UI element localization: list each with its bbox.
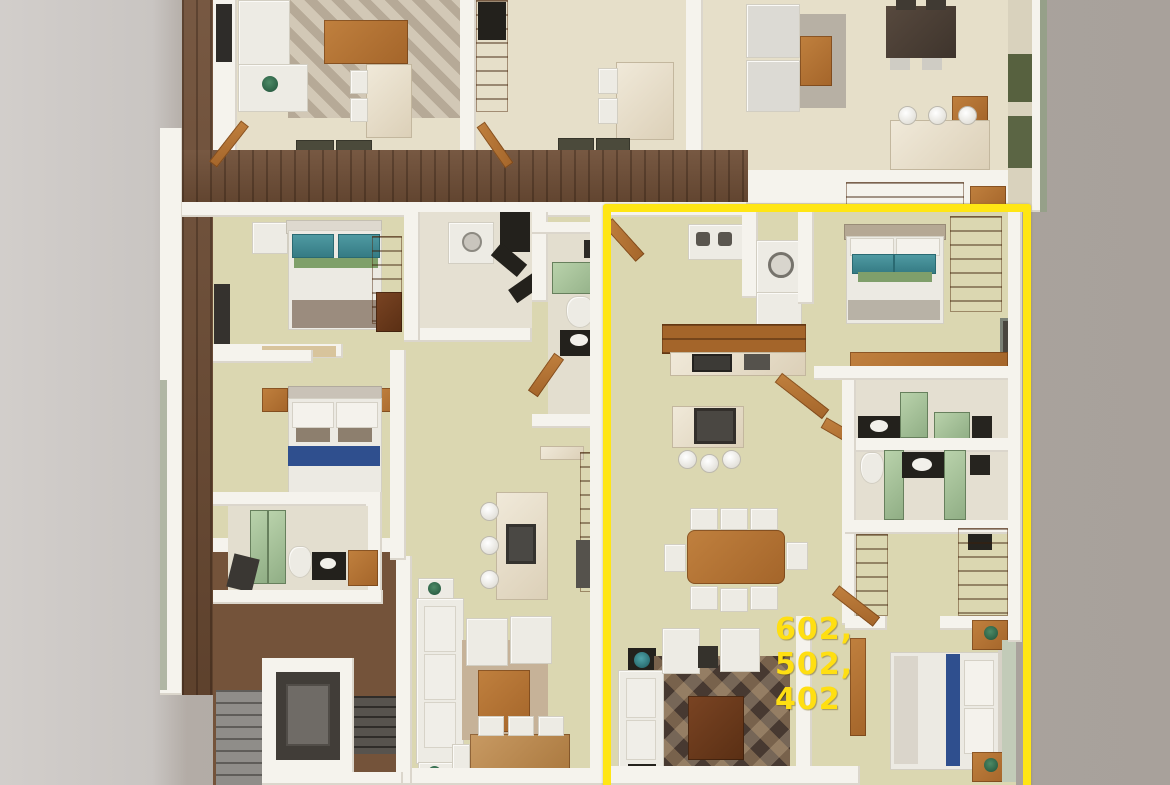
island-stool bbox=[480, 502, 499, 521]
sofa-cushion bbox=[424, 606, 456, 652]
unit-b-chair bbox=[598, 98, 618, 124]
dining-chair bbox=[478, 716, 504, 736]
unit-b-chair bbox=[598, 68, 618, 94]
wall-bedroom2-top bbox=[213, 350, 313, 363]
unit-number-line: 502, bbox=[775, 647, 853, 682]
island-stool bbox=[480, 570, 499, 589]
kitchen-counter bbox=[540, 446, 584, 460]
unit-c-dining-table bbox=[886, 6, 956, 58]
cooktop bbox=[506, 524, 536, 564]
pillow bbox=[292, 234, 334, 258]
floor-plan-render: 602, 502, 402 bbox=[0, 0, 1170, 785]
unit-c-dining-chair bbox=[896, 0, 916, 10]
unit-c-dining-chair bbox=[926, 0, 946, 10]
unit-b-island bbox=[616, 62, 674, 140]
unit-a-plant bbox=[262, 76, 278, 92]
unit-c-sofa-section bbox=[746, 60, 800, 112]
unit-a-dining-table bbox=[366, 64, 412, 138]
balcony-green-panel bbox=[1008, 116, 1034, 168]
unit-c-sofa-section bbox=[746, 4, 800, 58]
sofa-cushion bbox=[424, 654, 456, 700]
island-stool bbox=[480, 536, 499, 555]
wall-bath3-bottom bbox=[213, 590, 383, 604]
wall-bath3-top bbox=[213, 492, 381, 506]
wall-left-unit-bottom bbox=[412, 768, 608, 785]
window-top-left bbox=[216, 4, 232, 62]
wall-bath3-right bbox=[366, 492, 382, 604]
wall-unit-b-c bbox=[686, 0, 703, 155]
unit-c-coffee-table bbox=[800, 36, 832, 86]
bed-throw bbox=[294, 258, 378, 268]
bar-stool bbox=[928, 106, 947, 125]
wall-bathroom-bottom bbox=[420, 328, 532, 342]
corridor-wood-vertical bbox=[182, 0, 213, 695]
unit-a-chair bbox=[350, 70, 368, 94]
unit-a-coffee-table bbox=[324, 20, 408, 64]
shower-glass bbox=[268, 510, 286, 584]
balcony-glass-left bbox=[160, 380, 167, 690]
dresser bbox=[348, 550, 378, 586]
wall-bedroom2-right bbox=[390, 350, 406, 560]
unit-a-chair bbox=[350, 98, 368, 122]
accent-pillow bbox=[296, 428, 330, 442]
wall-tv-panel bbox=[214, 284, 230, 346]
washer-door bbox=[462, 232, 482, 252]
nightstand bbox=[252, 222, 288, 254]
wall-core-right bbox=[396, 556, 412, 785]
nightstand bbox=[262, 388, 288, 412]
unit-number-line: 602, bbox=[775, 612, 853, 647]
wall-bedroom1-right bbox=[404, 212, 420, 342]
toilet bbox=[288, 546, 312, 578]
elevator-cabin bbox=[286, 684, 330, 746]
bar-stool bbox=[958, 106, 977, 125]
dining-chair bbox=[508, 716, 534, 736]
bar-stool bbox=[898, 106, 917, 125]
sofa-cushion bbox=[424, 702, 456, 748]
bed-runner bbox=[288, 446, 380, 466]
bed-blanket bbox=[292, 300, 378, 328]
staircase bbox=[216, 690, 262, 785]
unit-b-fridge bbox=[478, 2, 506, 40]
sink bbox=[570, 334, 588, 346]
corner-shelf bbox=[376, 292, 402, 332]
unit-number-line: 402 bbox=[775, 682, 853, 717]
accent-pillow bbox=[338, 428, 372, 442]
pillow bbox=[292, 402, 334, 428]
unit-c-dining-chair bbox=[890, 58, 910, 70]
staircase-lower-flight bbox=[354, 696, 396, 754]
armchair bbox=[466, 618, 508, 666]
dining-chair bbox=[538, 716, 564, 736]
balcony-glass-right bbox=[1040, 0, 1047, 212]
plant bbox=[428, 582, 441, 595]
wall-unit-a-b bbox=[460, 0, 476, 152]
unit-numbers-label: 602, 502, 402 bbox=[775, 612, 853, 717]
sink bbox=[320, 558, 336, 569]
unit-c-breakfast-bar bbox=[890, 120, 990, 170]
wall-core-bottom bbox=[262, 772, 403, 785]
balcony-green-panel bbox=[1008, 54, 1034, 102]
armchair bbox=[510, 616, 552, 664]
unit-c-dining-chair bbox=[922, 58, 942, 70]
pillow bbox=[336, 402, 378, 428]
